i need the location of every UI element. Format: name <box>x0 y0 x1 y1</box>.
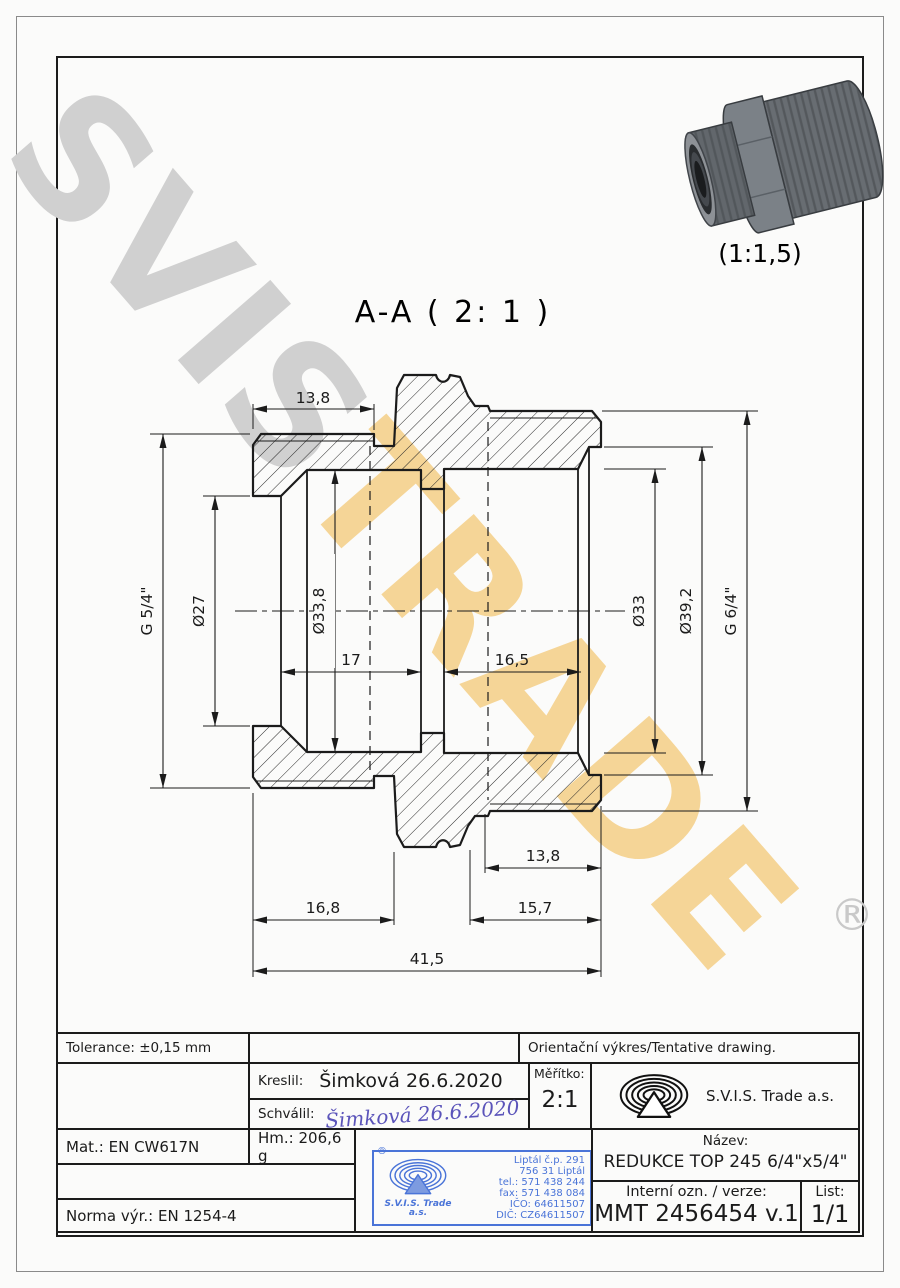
dim-left-thread: G 5/4" <box>138 586 156 635</box>
stamp-company-suffix: a.s. <box>379 1209 457 1218</box>
dim-bottom-left-length: 16,8 <box>306 899 341 917</box>
stamp-registered-icon: ® <box>377 1146 387 1157</box>
extension-lines <box>150 404 758 977</box>
tolerance-text: Tolerance: ±0,15 mm <box>66 1040 211 1056</box>
part-3d-thumbnail <box>674 71 893 246</box>
dimension-lines <box>163 409 747 971</box>
dim-top-length: 13,8 <box>296 389 331 407</box>
drawn-label: Kreslil: <box>258 1073 303 1089</box>
dim-depth-right: 16,5 <box>495 651 530 669</box>
name-label: Název: <box>593 1133 858 1149</box>
stamp-line: DIČ: CZ64611507 <box>457 1210 585 1221</box>
norm-cell: Norma výr.: EN 1254-4 <box>56 1198 356 1233</box>
dim-bore-left: Ø33,8 <box>310 588 328 635</box>
dim-bore-right: Ø33 <box>630 595 648 627</box>
name-value: REDUKCE TOP 245 6/4"x5/4" <box>593 1152 858 1172</box>
section-label: A-A ( 2: 1 ) <box>355 295 551 330</box>
internal-label: Interní ozn. / verze: <box>593 1184 800 1200</box>
company-name: S.V.I.S. Trade a.s. <box>706 1087 834 1105</box>
svis-logo-icon <box>616 1071 692 1121</box>
note-cell: Orientační výkres/Tentative drawing. <box>518 1032 860 1064</box>
dim-thread-length-bottom: 13,8 <box>526 847 561 865</box>
stamp-cell: ® S.V.I.S. Trade a.s. <box>354 1128 593 1233</box>
stamp-address-block: Liptál č.p. 291 756 31 Liptál tel.: 571 … <box>457 1155 585 1221</box>
drawn-cell: Kreslil: Šimková 26.6.2020 <box>248 1062 530 1100</box>
sheet-cell: List: 1/1 <box>800 1180 860 1233</box>
name-cell: Název: REDUKCE TOP 245 6/4"x5/4" <box>591 1128 860 1182</box>
thumbnail-scale-label: (1:1,5) <box>718 239 802 268</box>
scale-label: Měřítko: <box>534 1066 586 1081</box>
dim-total-length: 41,5 <box>410 950 445 968</box>
empty-cell-left <box>56 1062 250 1130</box>
stamp-line: 756 31 Liptál <box>457 1166 585 1177</box>
weight-cell: Hm.: 206,6 g <box>248 1128 356 1165</box>
title-block: Tolerance: ±0,15 mm Orientační výkres/Te… <box>56 1032 860 1233</box>
dim-depth-left: 17 <box>341 651 361 669</box>
tolerance-cell: Tolerance: ±0,15 mm <box>56 1032 250 1064</box>
weight-text: Hm.: 206,6 g <box>258 1129 346 1165</box>
empty-cell-top <box>248 1032 520 1064</box>
material-cell: Mat.: EN CW617N <box>56 1128 250 1165</box>
drawn-value: Šimková 26.6.2020 <box>319 1070 502 1092</box>
approved-cell: Schválil: Šimková 26.6.2020 <box>248 1098 530 1130</box>
scale-cell: Měřítko: 2:1 <box>528 1062 592 1130</box>
sheet-value: 1/1 <box>802 1200 858 1228</box>
dim-bore-mouth: Ø39,2 <box>677 588 695 635</box>
sheet-label: List: <box>802 1184 858 1200</box>
scale-value: 2:1 <box>534 1087 586 1113</box>
dim-bore-small: Ø27 <box>190 595 208 627</box>
stamp-line: fax: 571 438 084 <box>457 1188 585 1199</box>
norm-text: Norma výr.: EN 1254-4 <box>66 1207 237 1225</box>
stamp-logo-icon <box>386 1158 450 1196</box>
drawing-sheet: SVISTRADE ® A-A ( 2: 1 ) <box>0 0 900 1288</box>
stamp-line: Liptál č.p. 291 <box>457 1155 585 1166</box>
internal-id-cell: Interní ozn. / verze: MMT 2456454 v.1 <box>591 1180 802 1233</box>
internal-value: MMT 2456454 v.1 <box>593 1201 800 1227</box>
note-text: Orientační výkres/Tentative drawing. <box>528 1040 776 1056</box>
stamp-line: IČO: 64611507 <box>457 1199 585 1210</box>
dim-right-thread: G 6/4" <box>722 586 740 635</box>
dim-bottom-right-length: 15,7 <box>518 899 553 917</box>
company-cell: S.V.I.S. Trade a.s. <box>590 1062 860 1130</box>
company-stamp: ® S.V.I.S. Trade a.s. <box>372 1150 592 1226</box>
stamp-logo-block: ® S.V.I.S. Trade a.s. <box>379 1158 457 1218</box>
stamp-line: tel.: 571 438 244 <box>457 1177 585 1188</box>
approved-label: Schválil: <box>258 1106 315 1122</box>
material-text: Mat.: EN CW617N <box>66 1138 199 1156</box>
empty-cell-mid <box>56 1163 356 1200</box>
part-lower-half <box>253 726 601 847</box>
